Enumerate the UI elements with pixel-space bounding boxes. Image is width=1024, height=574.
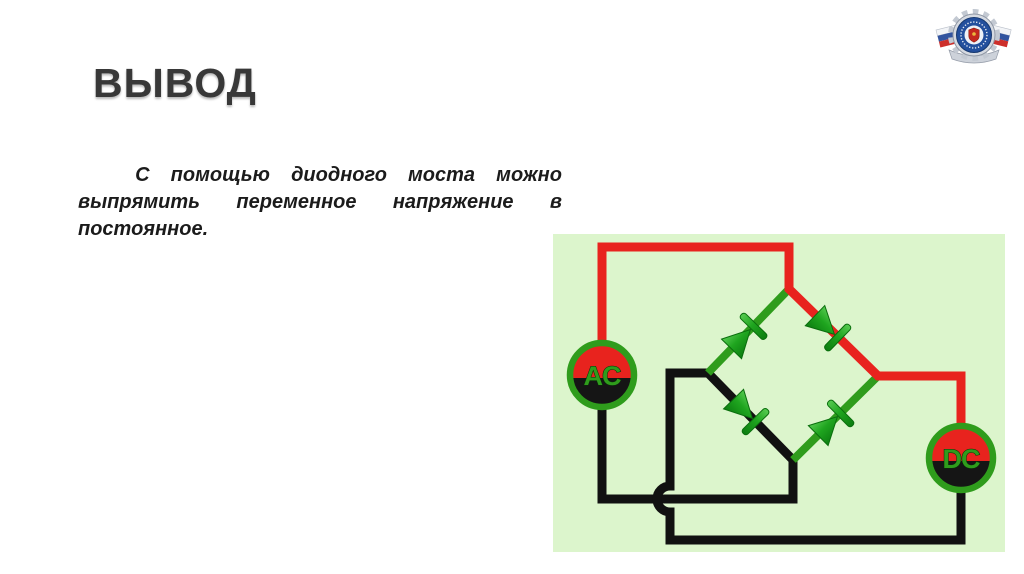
conclusion-paragraph: Спомощьюдиодногомостаможновыпрямитьперем… — [78, 164, 562, 245]
wire-ac-to-bridge-top-and-dc — [602, 247, 961, 428]
word: диодного — [291, 164, 387, 187]
word: выпрямить — [78, 191, 200, 214]
word: переменное — [236, 191, 356, 214]
paragraph-line: Спомощьюдиодногомостаможно — [78, 164, 562, 191]
emblem-graphic — [933, 6, 1015, 66]
presentation-slide: ВЫВОД Спомощьюдиодногомостаможновыпрямит… — [0, 0, 1024, 574]
word: моста — [408, 164, 475, 187]
word: помощью — [171, 164, 270, 187]
college-emblem-logo — [933, 6, 1015, 66]
wire-bridge-left-to-dc — [657, 373, 961, 540]
diode-bridge-diagram: AC DC — [553, 234, 1005, 552]
slide-title: ВЫВОД — [93, 60, 257, 107]
dc-terminal: DC — [928, 425, 994, 491]
paragraph-line: выпрямитьпеременноенапряжениев — [78, 191, 562, 218]
word: в — [550, 191, 562, 214]
paragraph-line: постоянное. — [78, 218, 562, 245]
ac-label: AC — [584, 361, 621, 391]
ac-terminal: AC — [569, 342, 635, 408]
word: С — [135, 164, 149, 187]
gear-icon — [951, 12, 997, 58]
circuit-graphic: AC DC — [553, 234, 1005, 552]
word: напряжение — [393, 191, 514, 214]
dc-label: DC — [943, 444, 980, 474]
word: постоянное. — [78, 218, 208, 241]
word: можно — [496, 164, 562, 187]
